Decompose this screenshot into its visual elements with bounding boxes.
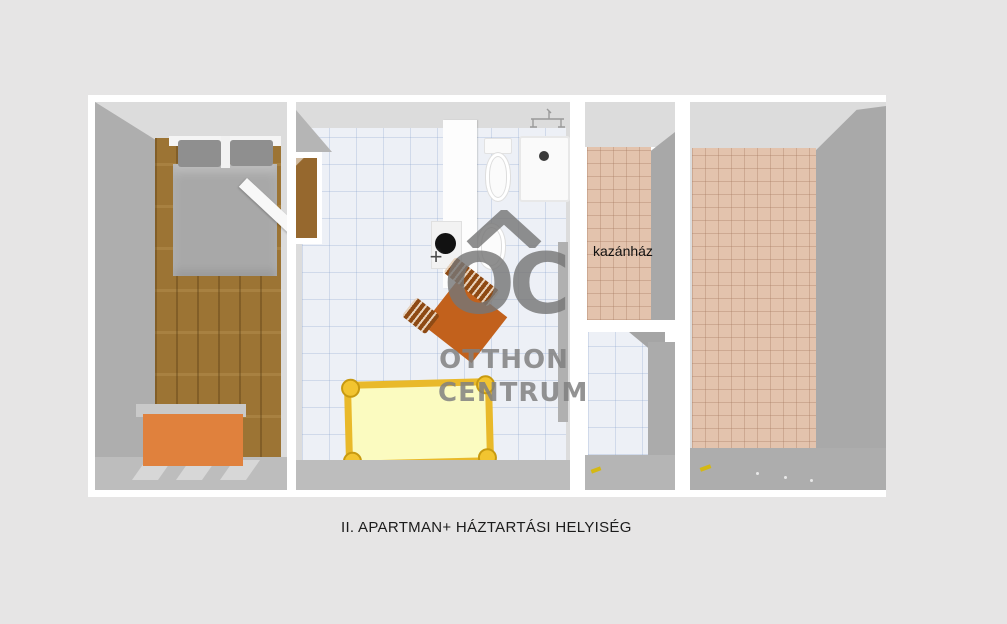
small-room-bottom-wall [585,455,675,490]
door-handle [286,222,287,229]
living-right-wall [558,242,568,422]
plan-caption: II. APARTMAN+ HÁZTARTÁSI HELYISÉG [341,519,632,536]
toilet-bowl [485,152,511,202]
floorplan-outline: + [88,95,886,497]
small-room-tile-floor [588,332,648,455]
storage-bottom-wall [690,448,886,490]
boiler-tile-floor [587,147,651,320]
small-room-door-handle [591,466,602,473]
room-boiler-column: kazánház [585,102,675,490]
boiler-room-label: kazánház [593,243,653,259]
boiler-right-wall [651,132,675,320]
boiler-top-wall [585,102,675,147]
living-bottom-wall [296,460,570,490]
wardrobe-door [296,158,317,238]
bed-headboard-gap [221,136,230,168]
toilet [484,138,512,204]
storage-door-handle [700,464,712,472]
bed-pillow-left [178,140,221,167]
bed-pillow-right [230,140,273,166]
room-bedroom [95,102,287,490]
washbasin [477,223,506,270]
storage-tile-floor [692,148,816,455]
sparkle-icon: + [424,245,448,269]
storage-right-wall [816,106,886,490]
dresser [143,414,243,466]
shower-fixture-icon [528,107,566,134]
small-room-right-wall [648,342,675,457]
wardrobe-niche [296,152,322,244]
floorplan-image: + [0,0,1007,624]
room-living: + [296,102,570,490]
room-storage [690,102,886,490]
cot-bed [344,378,494,468]
shower-drain [539,151,549,161]
shower-tray [519,136,570,202]
bed-duvet [173,164,277,276]
boiler-divider-wall [585,320,675,332]
